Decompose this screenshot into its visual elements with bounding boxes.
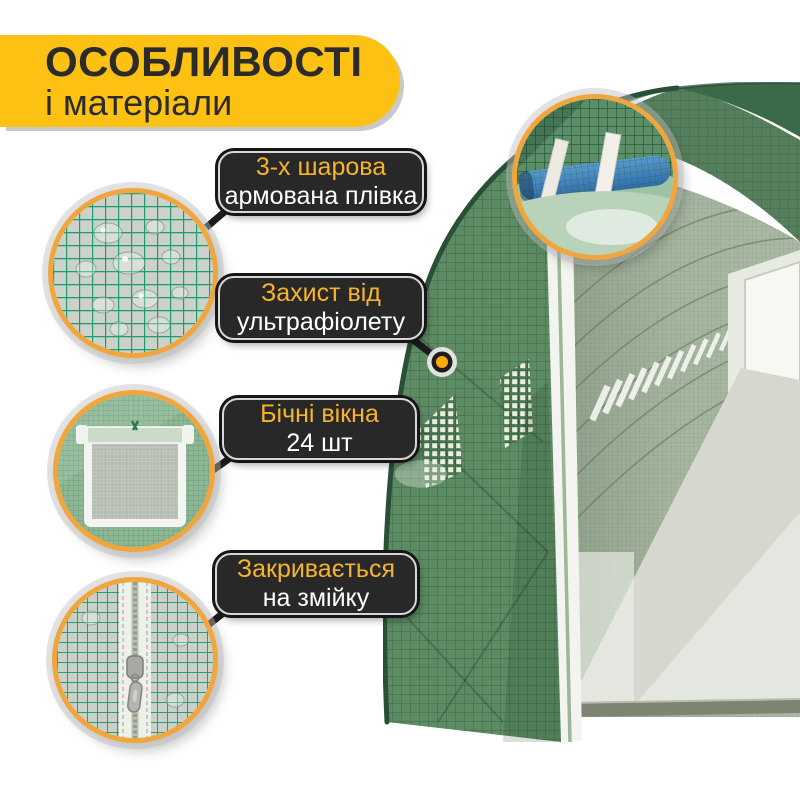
callout-line1: Захист від xyxy=(261,279,381,308)
zipper xyxy=(119,582,151,738)
callout-uv-protection: Захист від ультрафіолету xyxy=(218,276,424,340)
callout-line1: Бічні вікна xyxy=(260,400,379,429)
callout-line2: ультрафіолету xyxy=(237,308,405,337)
side-window-photo xyxy=(53,390,215,552)
callout-line2: 24 шт xyxy=(286,429,352,458)
callout-side-windows: Бічні вікна 24 шт xyxy=(222,398,417,460)
callout-line2: армована плівка xyxy=(225,182,418,211)
callout-zipper-closing: Закривається на змійку xyxy=(215,553,417,615)
far-door xyxy=(745,262,800,389)
header-banner: ОСОБЛИВОСТІ і матеріали xyxy=(0,35,400,127)
page-title: ОСОБЛИВОСТІ xyxy=(45,40,400,84)
page-subtitle: і матеріали xyxy=(45,84,400,122)
zipper-photo xyxy=(52,577,218,743)
mesh-window xyxy=(76,421,194,523)
callout-line1: Закривається xyxy=(237,555,395,584)
callout-reinforced-film: 3-х шарова армована плівка xyxy=(218,151,424,213)
reinforced-film-droplets-photo xyxy=(48,188,218,358)
frame-pipe-photo xyxy=(512,94,678,260)
callout-line1: 3-х шарова xyxy=(256,153,386,182)
callout-line2: на змійку xyxy=(263,584,370,613)
